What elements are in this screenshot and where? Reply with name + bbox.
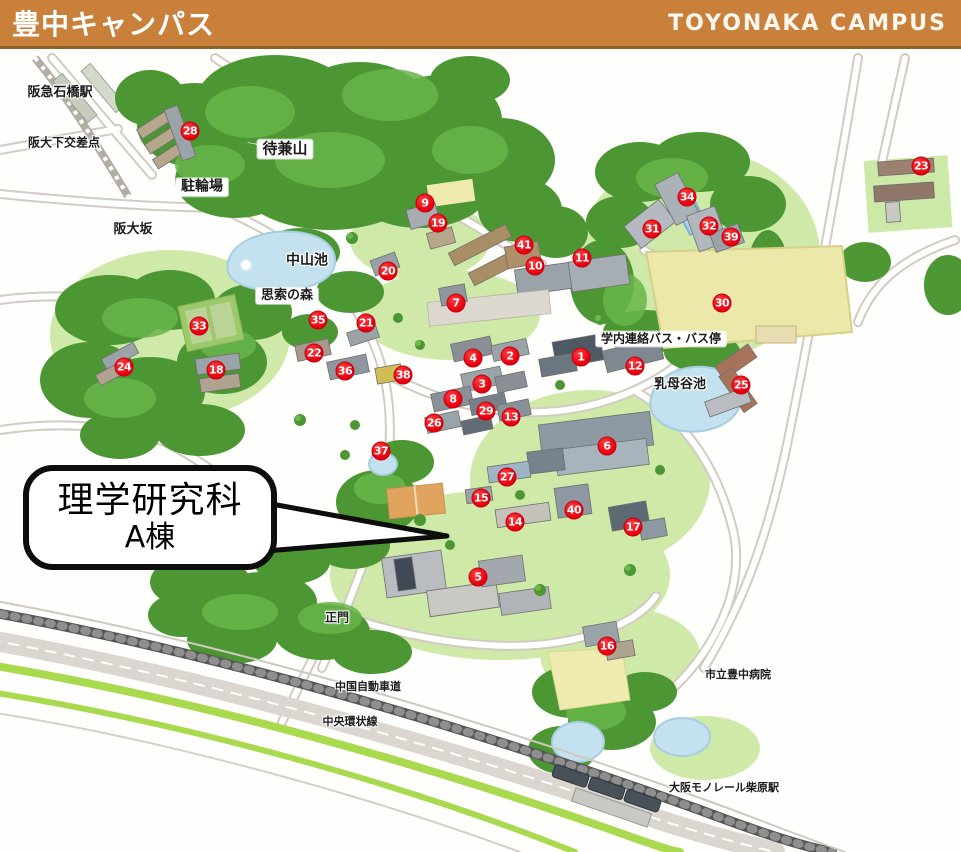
tennis-courts-east — [756, 326, 796, 343]
map-marker-23[interactable]: 23 — [912, 157, 931, 176]
map-marker-31[interactable]: 31 — [643, 220, 662, 239]
map-marker-40[interactable]: 40 — [565, 501, 584, 520]
map-label-chuo-kanjo-route: 中央環状線 — [323, 715, 378, 729]
map-label-ubagai-pond: 乳母谷池 — [654, 377, 706, 393]
map-marker-37[interactable]: 37 — [372, 442, 391, 461]
map-marker-35[interactable]: 35 — [309, 311, 328, 330]
map-marker-25[interactable]: 25 — [732, 376, 751, 395]
page-title-japanese: 豊中キャンパス — [12, 3, 215, 43]
map-marker-12[interactable]: 12 — [626, 357, 645, 376]
map-marker-22[interactable]: 22 — [305, 344, 324, 363]
map-label-machikaneyama: 待兼山 — [257, 140, 312, 159]
map-marker-11[interactable]: 11 — [573, 249, 592, 268]
map-marker-21[interactable]: 21 — [357, 314, 376, 333]
map-marker-24[interactable]: 24 — [115, 358, 134, 377]
map-marker-6[interactable]: 6 — [598, 437, 617, 456]
map-marker-8[interactable]: 8 — [444, 390, 463, 409]
map-label-handai-zaka: 阪大坂 — [113, 222, 152, 238]
map-marker-7[interactable]: 7 — [447, 294, 466, 313]
map-marker-39[interactable]: 39 — [722, 228, 741, 247]
map-marker-4[interactable]: 4 — [464, 349, 483, 368]
map-marker-18[interactable]: 18 — [207, 361, 226, 380]
map-label-chugoku-expressway: 中国自動車道 — [335, 680, 401, 694]
map-label-handai-shita-crossing: 阪大下交差点 — [28, 136, 100, 151]
map-marker-26[interactable]: 26 — [425, 414, 444, 433]
map-label-hankyu-ishibashi-station: 阪急石橋駅 — [27, 85, 92, 101]
campus-map-stage: 阪急石橋駅阪大下交差点待兼山駐輪場阪大坂中山池思索の森学内連絡バス・バス停乳母谷… — [0, 0, 961, 852]
map-label-nakayama-pond: 中山池 — [286, 252, 328, 270]
map-label-campus-shuttle-bus-stop: 学内連絡バス・バス停 — [596, 332, 726, 347]
map-marker-34[interactable]: 34 — [678, 188, 697, 207]
map-marker-27[interactable]: 27 — [498, 468, 517, 487]
map-label-shisaku-no-mori: 思索の森 — [256, 288, 318, 304]
map-marker-14[interactable]: 14 — [506, 513, 525, 532]
map-marker-36[interactable]: 36 — [336, 362, 355, 381]
map-label-toyonaka-city-hospital: 市立豊中病院 — [705, 668, 771, 682]
callout-bubble: 理学研究科 A棟 — [23, 465, 277, 570]
map-marker-10[interactable]: 10 — [526, 257, 545, 276]
header-bar: 豊中キャンパス TOYONAKA CAMPUS — [0, 0, 961, 49]
map-label-main-gate: 正門 — [325, 611, 349, 626]
map-marker-3[interactable]: 3 — [473, 375, 492, 394]
map-marker-29[interactable]: 29 — [477, 402, 496, 421]
map-marker-20[interactable]: 20 — [379, 262, 398, 281]
callout-line2: A棟 — [125, 521, 176, 554]
map-marker-19[interactable]: 19 — [429, 214, 448, 233]
map-marker-1[interactable]: 1 — [572, 348, 591, 367]
map-marker-15[interactable]: 15 — [472, 489, 491, 508]
callout-line1: 理学研究科 — [57, 481, 242, 521]
map-label-osaka-monorail-shibahara: 大阪モノレール柴原駅 — [669, 781, 779, 795]
map-marker-13[interactable]: 13 — [502, 408, 521, 427]
map-marker-38[interactable]: 38 — [394, 366, 413, 385]
tennis-courts-center — [387, 483, 446, 519]
map-label-bicycle-parking: 駐輪場 — [176, 178, 228, 196]
map-marker-5[interactable]: 5 — [469, 568, 488, 587]
map-marker-28[interactable]: 28 — [181, 122, 200, 141]
map-marker-30[interactable]: 30 — [713, 294, 732, 313]
map-marker-32[interactable]: 32 — [700, 217, 719, 236]
page-title-english: TOYONAKA CAMPUS — [668, 11, 947, 36]
map-marker-16[interactable]: 16 — [598, 637, 617, 656]
map-marker-2[interactable]: 2 — [501, 347, 520, 366]
map-marker-33[interactable]: 33 — [190, 317, 209, 336]
map-marker-9[interactable]: 9 — [416, 194, 435, 213]
campus-map-illustration — [0, 0, 961, 852]
map-marker-41[interactable]: 41 — [515, 236, 534, 255]
map-marker-17[interactable]: 17 — [624, 518, 643, 537]
